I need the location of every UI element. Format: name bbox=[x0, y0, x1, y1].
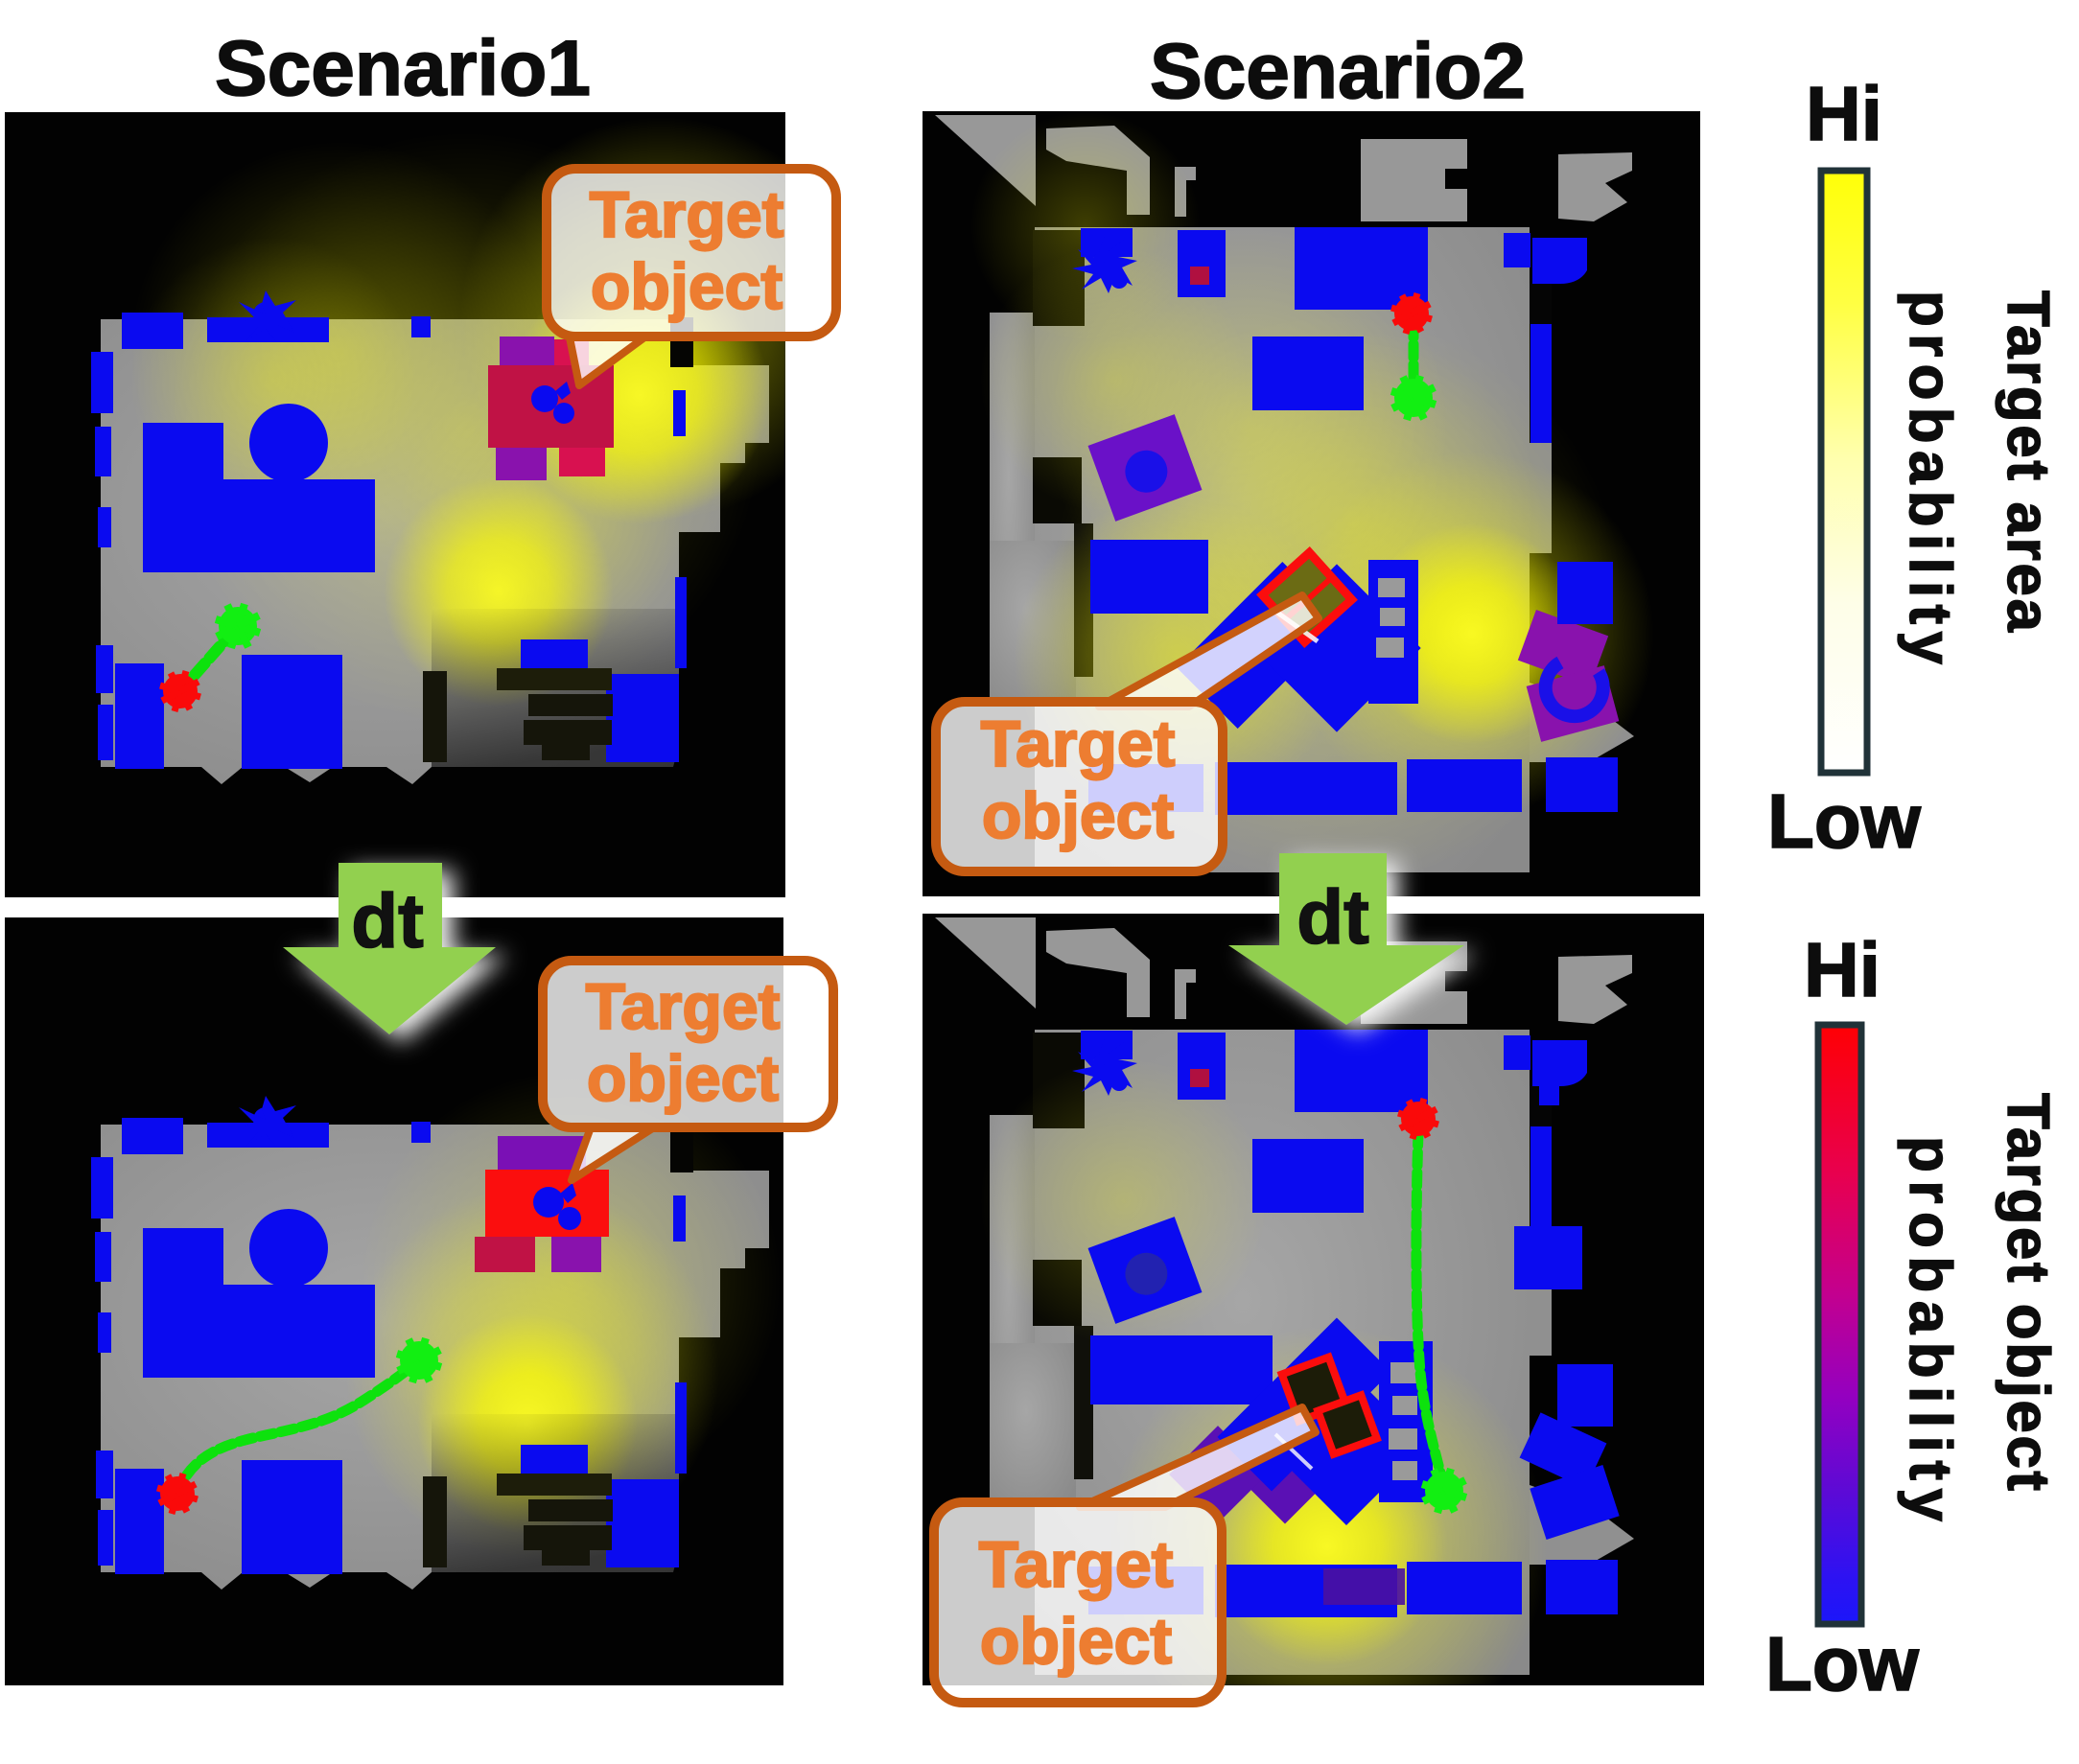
svg-text:probability: probability bbox=[1897, 1136, 1963, 1522]
svg-text:Target: Target bbox=[586, 970, 781, 1043]
svg-text:object: object bbox=[591, 250, 783, 323]
svg-text:Scenario1: Scenario1 bbox=[215, 25, 591, 112]
svg-text:Target area: Target area bbox=[1995, 290, 2061, 633]
svg-text:Target: Target bbox=[590, 178, 784, 251]
svg-text:Scenario2: Scenario2 bbox=[1150, 28, 1526, 115]
svg-text:Hi: Hi bbox=[1804, 927, 1880, 1012]
svg-text:Low: Low bbox=[1767, 778, 1922, 864]
svg-text:Hi: Hi bbox=[1806, 71, 1882, 156]
svg-text:Target: Target bbox=[981, 708, 1176, 780]
svg-text:probability: probability bbox=[1897, 290, 1963, 665]
svg-text:Target object: Target object bbox=[1995, 1093, 2061, 1491]
svg-text:object: object bbox=[587, 1042, 779, 1115]
svg-text:dt: dt bbox=[1296, 874, 1369, 960]
svg-text:Low: Low bbox=[1765, 1621, 1920, 1706]
svg-text:dt: dt bbox=[351, 878, 424, 963]
svg-text:object: object bbox=[982, 779, 1174, 852]
svg-text:Target: Target bbox=[979, 1528, 1174, 1601]
svg-text:object: object bbox=[980, 1605, 1172, 1678]
